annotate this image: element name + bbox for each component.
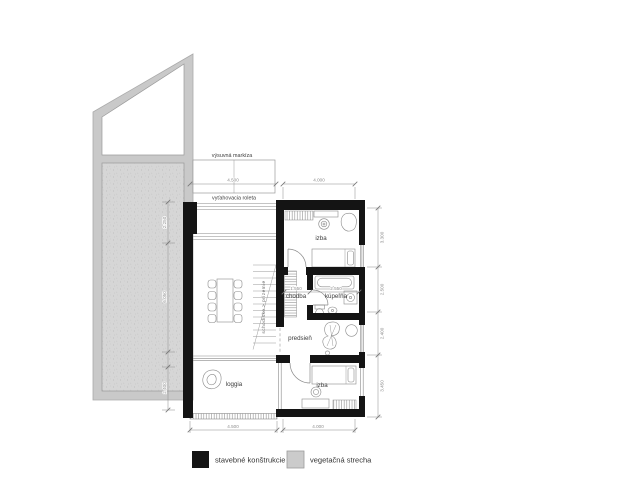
- staircase: schodisko > prízemie: [253, 265, 276, 350]
- wall-mid1-b: [306, 267, 365, 275]
- bedroom-south-west-window: [279, 363, 282, 409]
- dim-north-width: 4.000: [313, 178, 325, 183]
- plant-loggia: [203, 370, 221, 389]
- wall-mid1-a: [284, 267, 288, 275]
- roof-skylight-section: [102, 64, 184, 155]
- room-label-bedroom-north: izba: [315, 235, 327, 242]
- sink: [328, 307, 337, 314]
- wardrobe-north: [285, 211, 313, 220]
- side-table-entry: [346, 325, 358, 337]
- radiator-south: [333, 400, 356, 410]
- room-label-entry: predsieň: [288, 335, 312, 342]
- north-roller-band: [193, 204, 276, 210]
- wall-north: [276, 200, 365, 210]
- dim-bath-width: 2.550: [330, 286, 342, 291]
- dim-east-seg-1: 3.300: [380, 231, 385, 243]
- wall-bath-west-a: [307, 275, 313, 290]
- roller-blind-label: vyťahovacia roleta: [212, 196, 256, 202]
- dim-south-right-width: 4.000: [312, 424, 324, 429]
- dim-east-seg-3: 2.400: [380, 327, 385, 339]
- dim-east-seg-2: 2.500: [380, 283, 385, 295]
- armchair-entry: [323, 322, 340, 349]
- dim-south-left-width: 4.500: [227, 424, 239, 429]
- bedroom-north-east-window: [360, 245, 363, 267]
- walls: [183, 200, 365, 418]
- legend-label-construction: stavebné konštrukcie: [215, 456, 285, 465]
- door-bedroom-north: [288, 249, 306, 267]
- legend-label-vegetation-roof: vegetačná strecha: [310, 456, 372, 465]
- loggia-railing: [190, 414, 277, 420]
- room-label-loggia: loggia: [226, 381, 243, 388]
- dim-west-seg-2: 6.050: [162, 291, 167, 303]
- dining-table: [217, 279, 233, 322]
- bed-north: [312, 249, 355, 267]
- room-label-hall: chodba: [286, 293, 307, 300]
- staircase-label: schodisko > prízemie: [261, 280, 267, 333]
- dim-hall-width: 1.550: [290, 286, 302, 291]
- wall-mid2-a: [276, 355, 290, 363]
- legend: stavebné konštrukcie vegetačná strecha: [192, 451, 372, 468]
- desk-south: [302, 387, 329, 408]
- wall-east-1: [359, 200, 365, 245]
- dim-west-seg-1: 2.250: [162, 216, 167, 228]
- wall-bath-south: [307, 313, 365, 320]
- wall-south: [276, 409, 365, 417]
- room-label-bathroom: kúpeľňa: [325, 293, 348, 300]
- dim-east-seg-4: 3.450: [380, 380, 385, 392]
- dim-awning-width: 4.500: [227, 178, 239, 183]
- floor-plan-drawing: výsuvná markíza vyťahovacia roleta schod…: [0, 0, 630, 499]
- entry-door-stop: [325, 351, 329, 355]
- door-bedroom-south: [290, 363, 310, 383]
- legend-swatch-construction: [192, 451, 209, 468]
- dim-west-seg-3: 2.400: [162, 382, 167, 394]
- awning-label: výsuvná markíza: [212, 153, 252, 159]
- armchair-north: [341, 213, 356, 231]
- north-facade-glazing: [193, 234, 276, 240]
- roof-vegetation-surface: [102, 163, 184, 391]
- green-roof-structure: [93, 54, 193, 400]
- wall-mid2-b: [310, 355, 365, 363]
- legend-swatch-vegetation-roof: [287, 451, 304, 468]
- room-label-bedroom-south: izba: [316, 382, 328, 389]
- wall-bedroom-north-west: [276, 200, 284, 327]
- wall-west-pier: [183, 202, 197, 234]
- floor-plan-page: výsuvná markíza vyťahovacia roleta schod…: [0, 0, 630, 499]
- entry-east-window: [360, 325, 363, 352]
- bedroom-south-east-window: [361, 368, 364, 396]
- south-facade-glazing: [193, 356, 276, 361]
- wall-west: [183, 202, 193, 418]
- plant-north: [319, 219, 330, 230]
- shelf-north: [314, 211, 338, 217]
